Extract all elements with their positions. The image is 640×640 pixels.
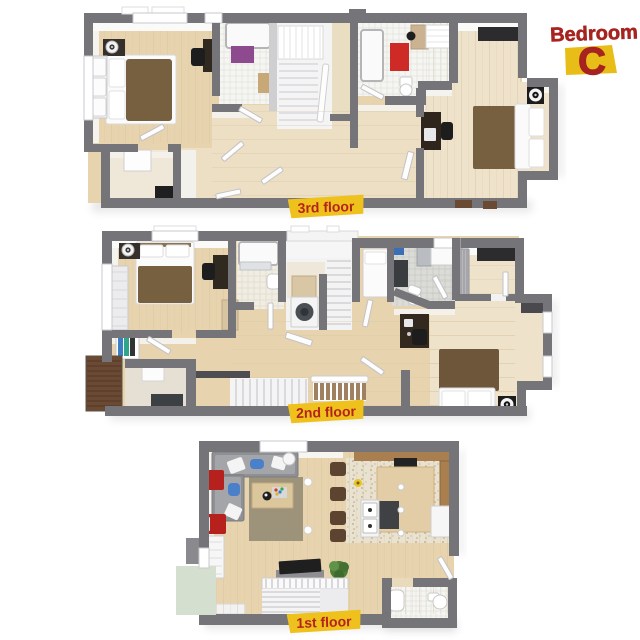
svg-text:C: C [578,41,605,83]
svg-text:2nd floor: 2nd floor [296,403,357,421]
svg-text:1st floor: 1st floor [296,613,352,631]
svg-text:3rd floor: 3rd floor [297,198,355,216]
